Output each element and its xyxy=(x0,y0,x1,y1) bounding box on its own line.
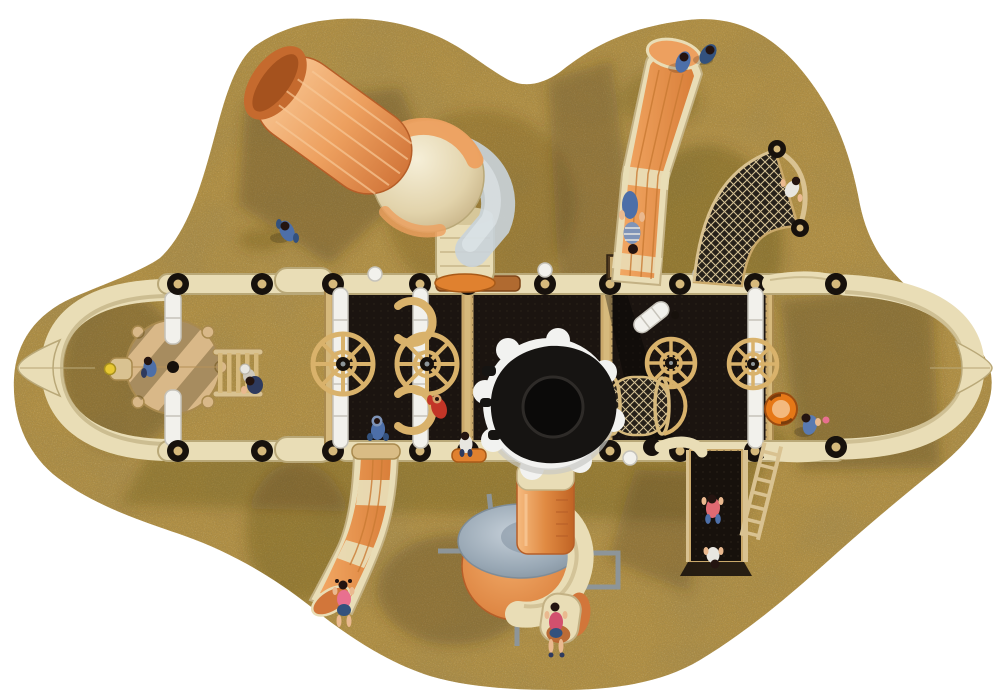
steering-wheel-1 xyxy=(313,334,373,394)
spinner-dish-center xyxy=(523,377,583,437)
left-slide-cap xyxy=(352,444,400,459)
carousel-hub xyxy=(167,361,179,373)
playground-render: Speckled sand safety surface island Crea… xyxy=(0,0,1000,691)
barrel: Orange play barrel xyxy=(765,393,797,425)
render-canvas: Speckled sand safety surface island Crea… xyxy=(0,0,1000,691)
steering-wheel-2 xyxy=(397,334,457,394)
carousel-handle-knob xyxy=(105,364,116,375)
steering-wheel-4 xyxy=(729,340,777,388)
